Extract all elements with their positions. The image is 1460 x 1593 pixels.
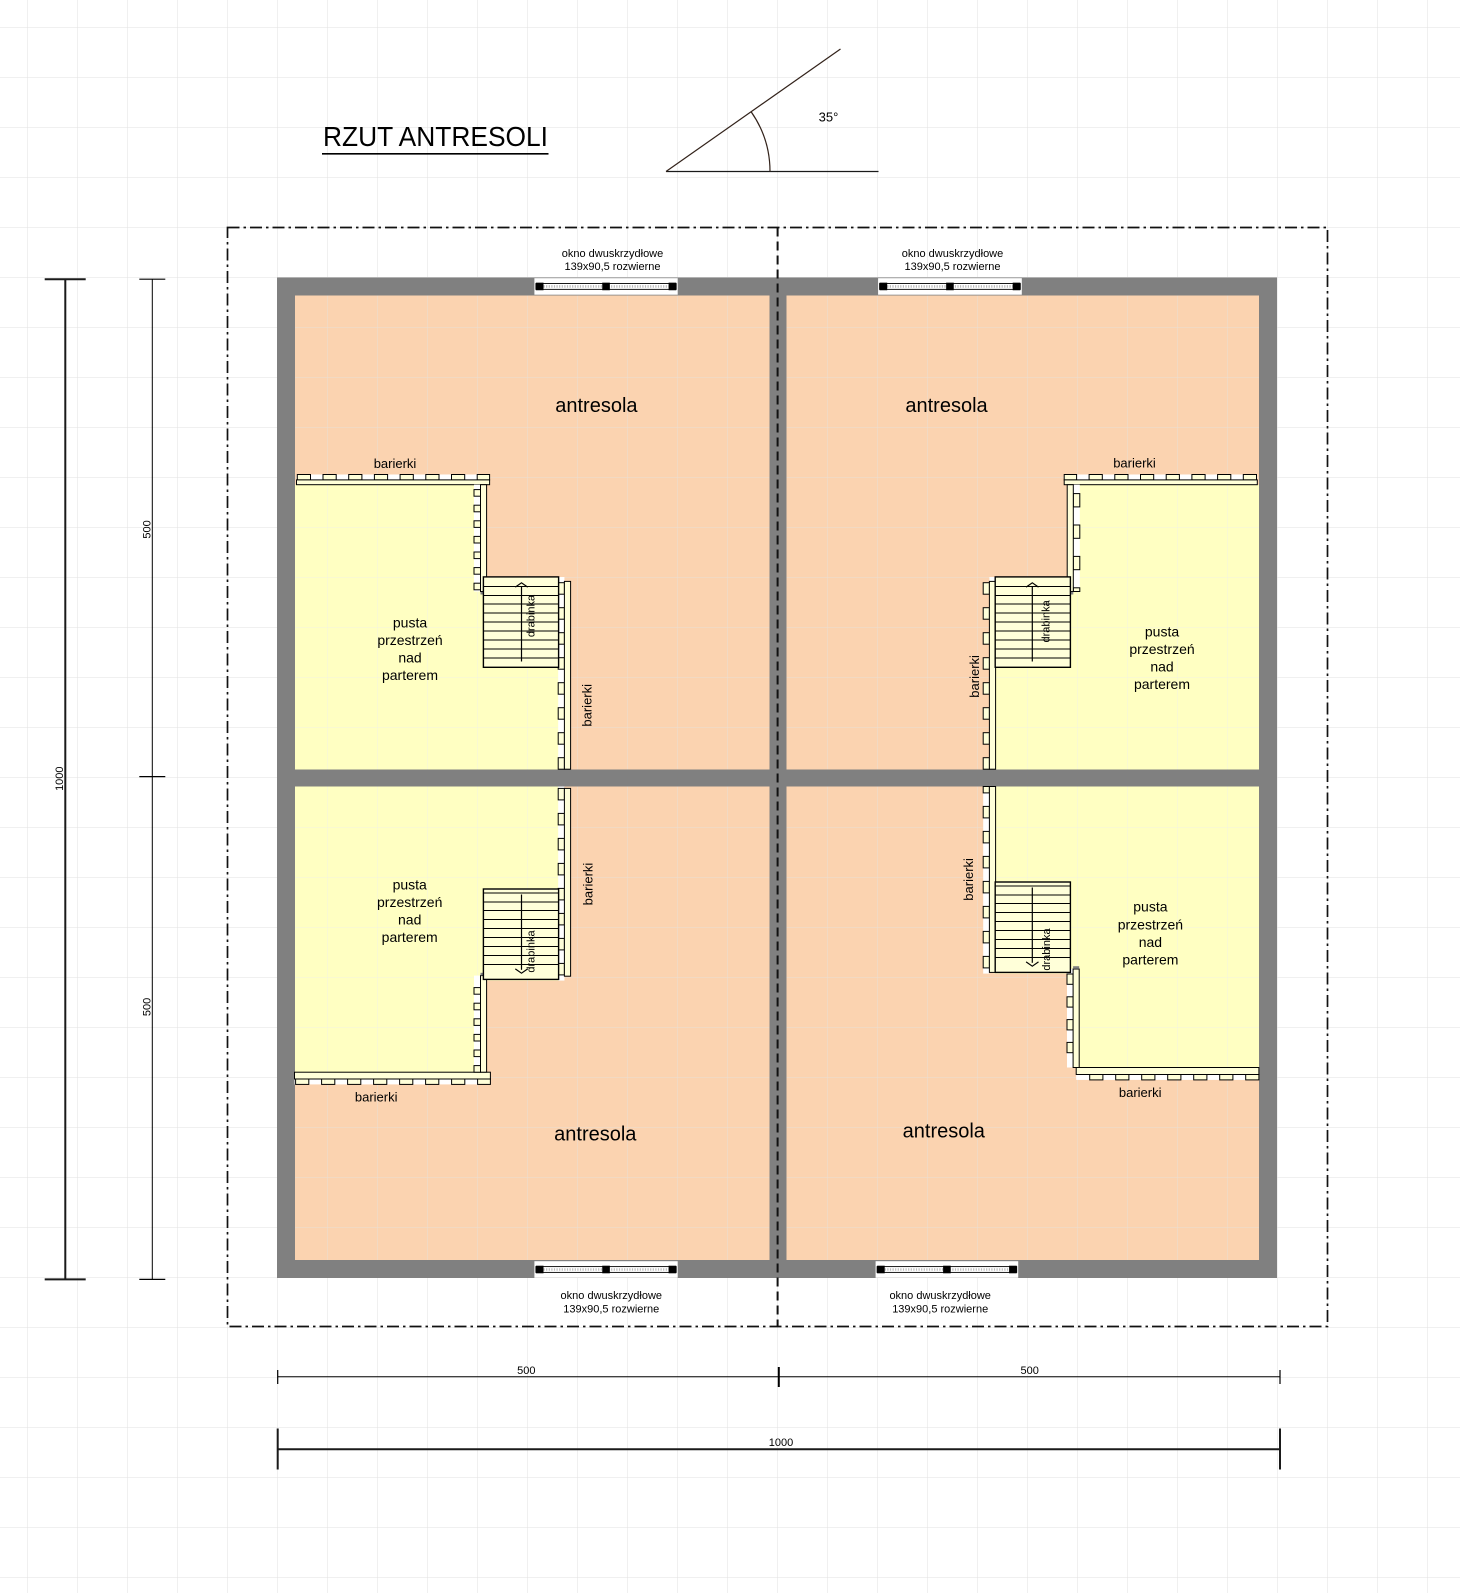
- svg-text:1000: 1000: [54, 766, 66, 790]
- svg-text:nad: nad: [1139, 934, 1162, 950]
- svg-text:barierki: barierki: [580, 684, 595, 727]
- svg-text:przestrzeń: przestrzeń: [1129, 641, 1194, 657]
- svg-text:okno dwuskrzydłowe: okno dwuskrzydłowe: [562, 248, 664, 260]
- svg-text:antresola: antresola: [554, 1123, 637, 1145]
- svg-text:przestrzeń: przestrzeń: [1118, 916, 1183, 932]
- svg-text:500: 500: [142, 998, 154, 1016]
- svg-text:RZUT ANTRESOLI: RZUT ANTRESOLI: [323, 121, 548, 152]
- svg-text:nad: nad: [398, 650, 421, 666]
- svg-text:parterem: parterem: [1122, 952, 1178, 968]
- svg-text:antresola: antresola: [555, 395, 638, 417]
- svg-text:500: 500: [142, 520, 154, 538]
- svg-text:barierki: barierki: [1119, 1085, 1162, 1100]
- svg-text:nad: nad: [398, 912, 421, 928]
- svg-text:drabinka: drabinka: [1041, 928, 1053, 971]
- svg-text:okno dwuskrzydłowe: okno dwuskrzydłowe: [561, 1290, 663, 1302]
- svg-text:139x90,5 rozwierne: 139x90,5 rozwierne: [904, 261, 1000, 273]
- svg-text:pusta: pusta: [393, 876, 427, 892]
- svg-text:barierki: barierki: [580, 863, 595, 906]
- svg-text:okno dwuskrzydłowe: okno dwuskrzydłowe: [889, 1290, 991, 1302]
- svg-text:antresola: antresola: [905, 395, 988, 417]
- svg-text:barierki: barierki: [374, 456, 417, 471]
- svg-text:nad: nad: [1150, 659, 1173, 675]
- svg-text:parterem: parterem: [1134, 676, 1190, 692]
- svg-text:pusta: pusta: [1145, 623, 1179, 639]
- svg-text:antresola: antresola: [903, 1120, 986, 1142]
- svg-text:barierki: barierki: [1113, 456, 1156, 471]
- svg-text:barierki: barierki: [967, 655, 982, 698]
- svg-text:parterem: parterem: [382, 667, 438, 683]
- svg-text:okno dwuskrzydłowe: okno dwuskrzydłowe: [902, 248, 1004, 260]
- svg-text:pusta: pusta: [1133, 899, 1167, 915]
- svg-text:1000: 1000: [769, 1437, 793, 1449]
- svg-text:139x90,5 rozwierne: 139x90,5 rozwierne: [563, 1303, 659, 1315]
- svg-text:500: 500: [517, 1365, 535, 1377]
- svg-text:barierki: barierki: [961, 858, 976, 901]
- svg-text:500: 500: [1021, 1365, 1039, 1377]
- svg-text:139x90,5 rozwierne: 139x90,5 rozwierne: [564, 261, 660, 273]
- svg-text:barierki: barierki: [355, 1090, 398, 1105]
- svg-text:35°: 35°: [819, 110, 839, 125]
- svg-text:przestrzeń: przestrzeń: [377, 632, 442, 648]
- svg-text:drabinka: drabinka: [526, 594, 538, 637]
- svg-text:drabinka: drabinka: [526, 930, 538, 973]
- svg-text:139x90,5 rozwierne: 139x90,5 rozwierne: [892, 1303, 988, 1315]
- svg-text:pusta: pusta: [393, 614, 427, 630]
- svg-text:przestrzeń: przestrzeń: [377, 894, 442, 910]
- svg-text:parterem: parterem: [382, 929, 438, 945]
- svg-text:drabinka: drabinka: [1040, 599, 1052, 642]
